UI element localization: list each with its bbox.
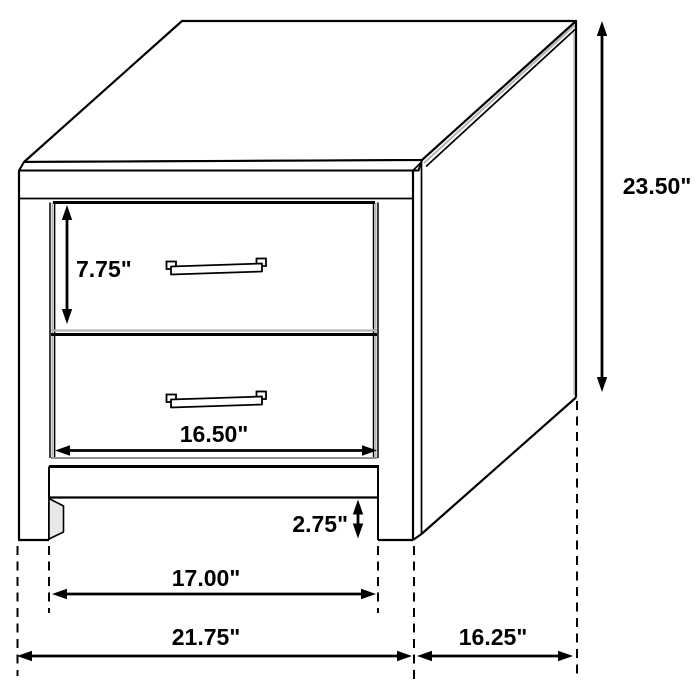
arrow-right-icon [362, 445, 377, 455]
arrow-right-icon [361, 589, 376, 599]
arrow-left-icon [417, 651, 432, 661]
arrow-up-icon [62, 205, 72, 220]
base-legs [18, 467, 413, 541]
dim-inner-width: 17.00" [52, 565, 376, 599]
handle2-bar [171, 397, 262, 408]
top-front-edge [19, 160, 422, 171]
handle1-bar [171, 264, 262, 275]
height-label: 23.50" [623, 173, 691, 199]
side-stretcher-wedge [49, 499, 64, 540]
drawer-height-label: 7.75" [76, 256, 132, 282]
side-bottom-edge [422, 398, 577, 535]
dim-depth: 16.25" [417, 624, 573, 661]
arrow-up-icon [597, 21, 607, 36]
drawer-1-handle [167, 259, 267, 275]
depth-label: 16.25" [459, 624, 527, 650]
dim-overall-width: 21.75" [17, 624, 412, 661]
nightstand-dimension-diagram: 7.75" 16.50" 2.75" 23.50" 17.00" 21.75" [0, 0, 700, 700]
arrow-left-icon [17, 651, 32, 661]
leg-side-bottom [413, 534, 422, 540]
top-panel [19, 21, 576, 171]
top-surface [24, 21, 576, 162]
clearance-label: 2.75" [292, 511, 348, 537]
dim-drawer-height: 7.75" [62, 205, 132, 324]
diagram-canvas: 7.75" 16.50" 2.75" 23.50" 17.00" 21.75" [0, 0, 700, 700]
arrow-down-icon [597, 377, 607, 392]
dim-height: 23.50" [597, 21, 691, 392]
drawer-2-handle [167, 392, 267, 408]
arrow-right-icon [558, 651, 573, 661]
inner-width-label: 17.00" [172, 565, 240, 591]
arrow-down-icon [62, 309, 72, 324]
dim-drawer-width: 16.50" [55, 421, 377, 456]
overall-width-label: 21.75" [172, 624, 240, 650]
arrow-left-icon [55, 445, 70, 455]
arrow-left-icon [52, 589, 67, 599]
arrow-right-icon [397, 651, 412, 661]
drawer-width-label: 16.50" [180, 421, 248, 447]
arrow-up-icon [353, 500, 363, 515]
dim-clearance: 2.75" [292, 500, 363, 539]
arrow-down-icon [353, 524, 363, 539]
front-frame [19, 171, 413, 541]
